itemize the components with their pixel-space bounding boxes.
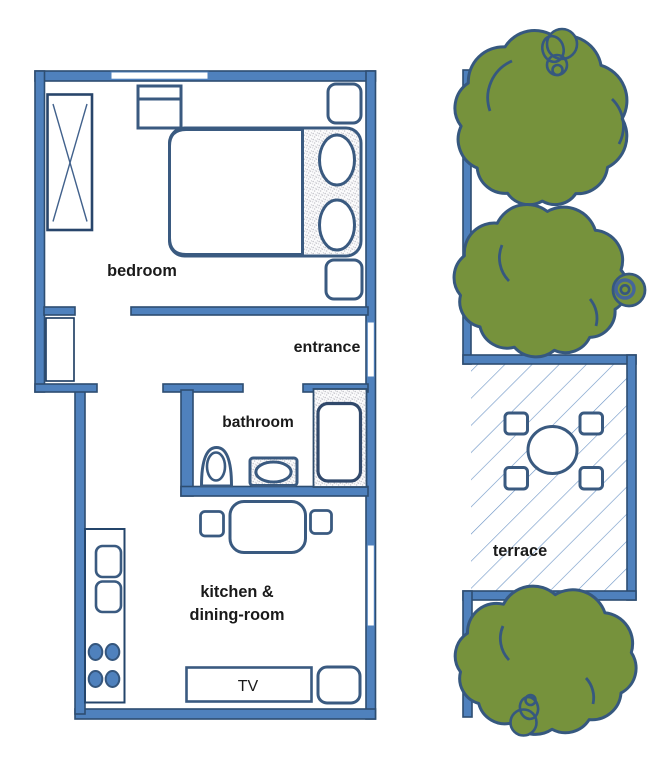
svg-text:bathroom: bathroom xyxy=(222,414,293,431)
svg-text:kitchen &: kitchen & xyxy=(200,583,274,601)
svg-text:bedroom: bedroom xyxy=(107,262,177,280)
svg-text:terrace: terrace xyxy=(493,542,547,560)
svg-text:dining-room: dining-room xyxy=(190,606,285,624)
svg-text:TV: TV xyxy=(238,678,259,695)
svg-text:entrance: entrance xyxy=(294,339,361,356)
